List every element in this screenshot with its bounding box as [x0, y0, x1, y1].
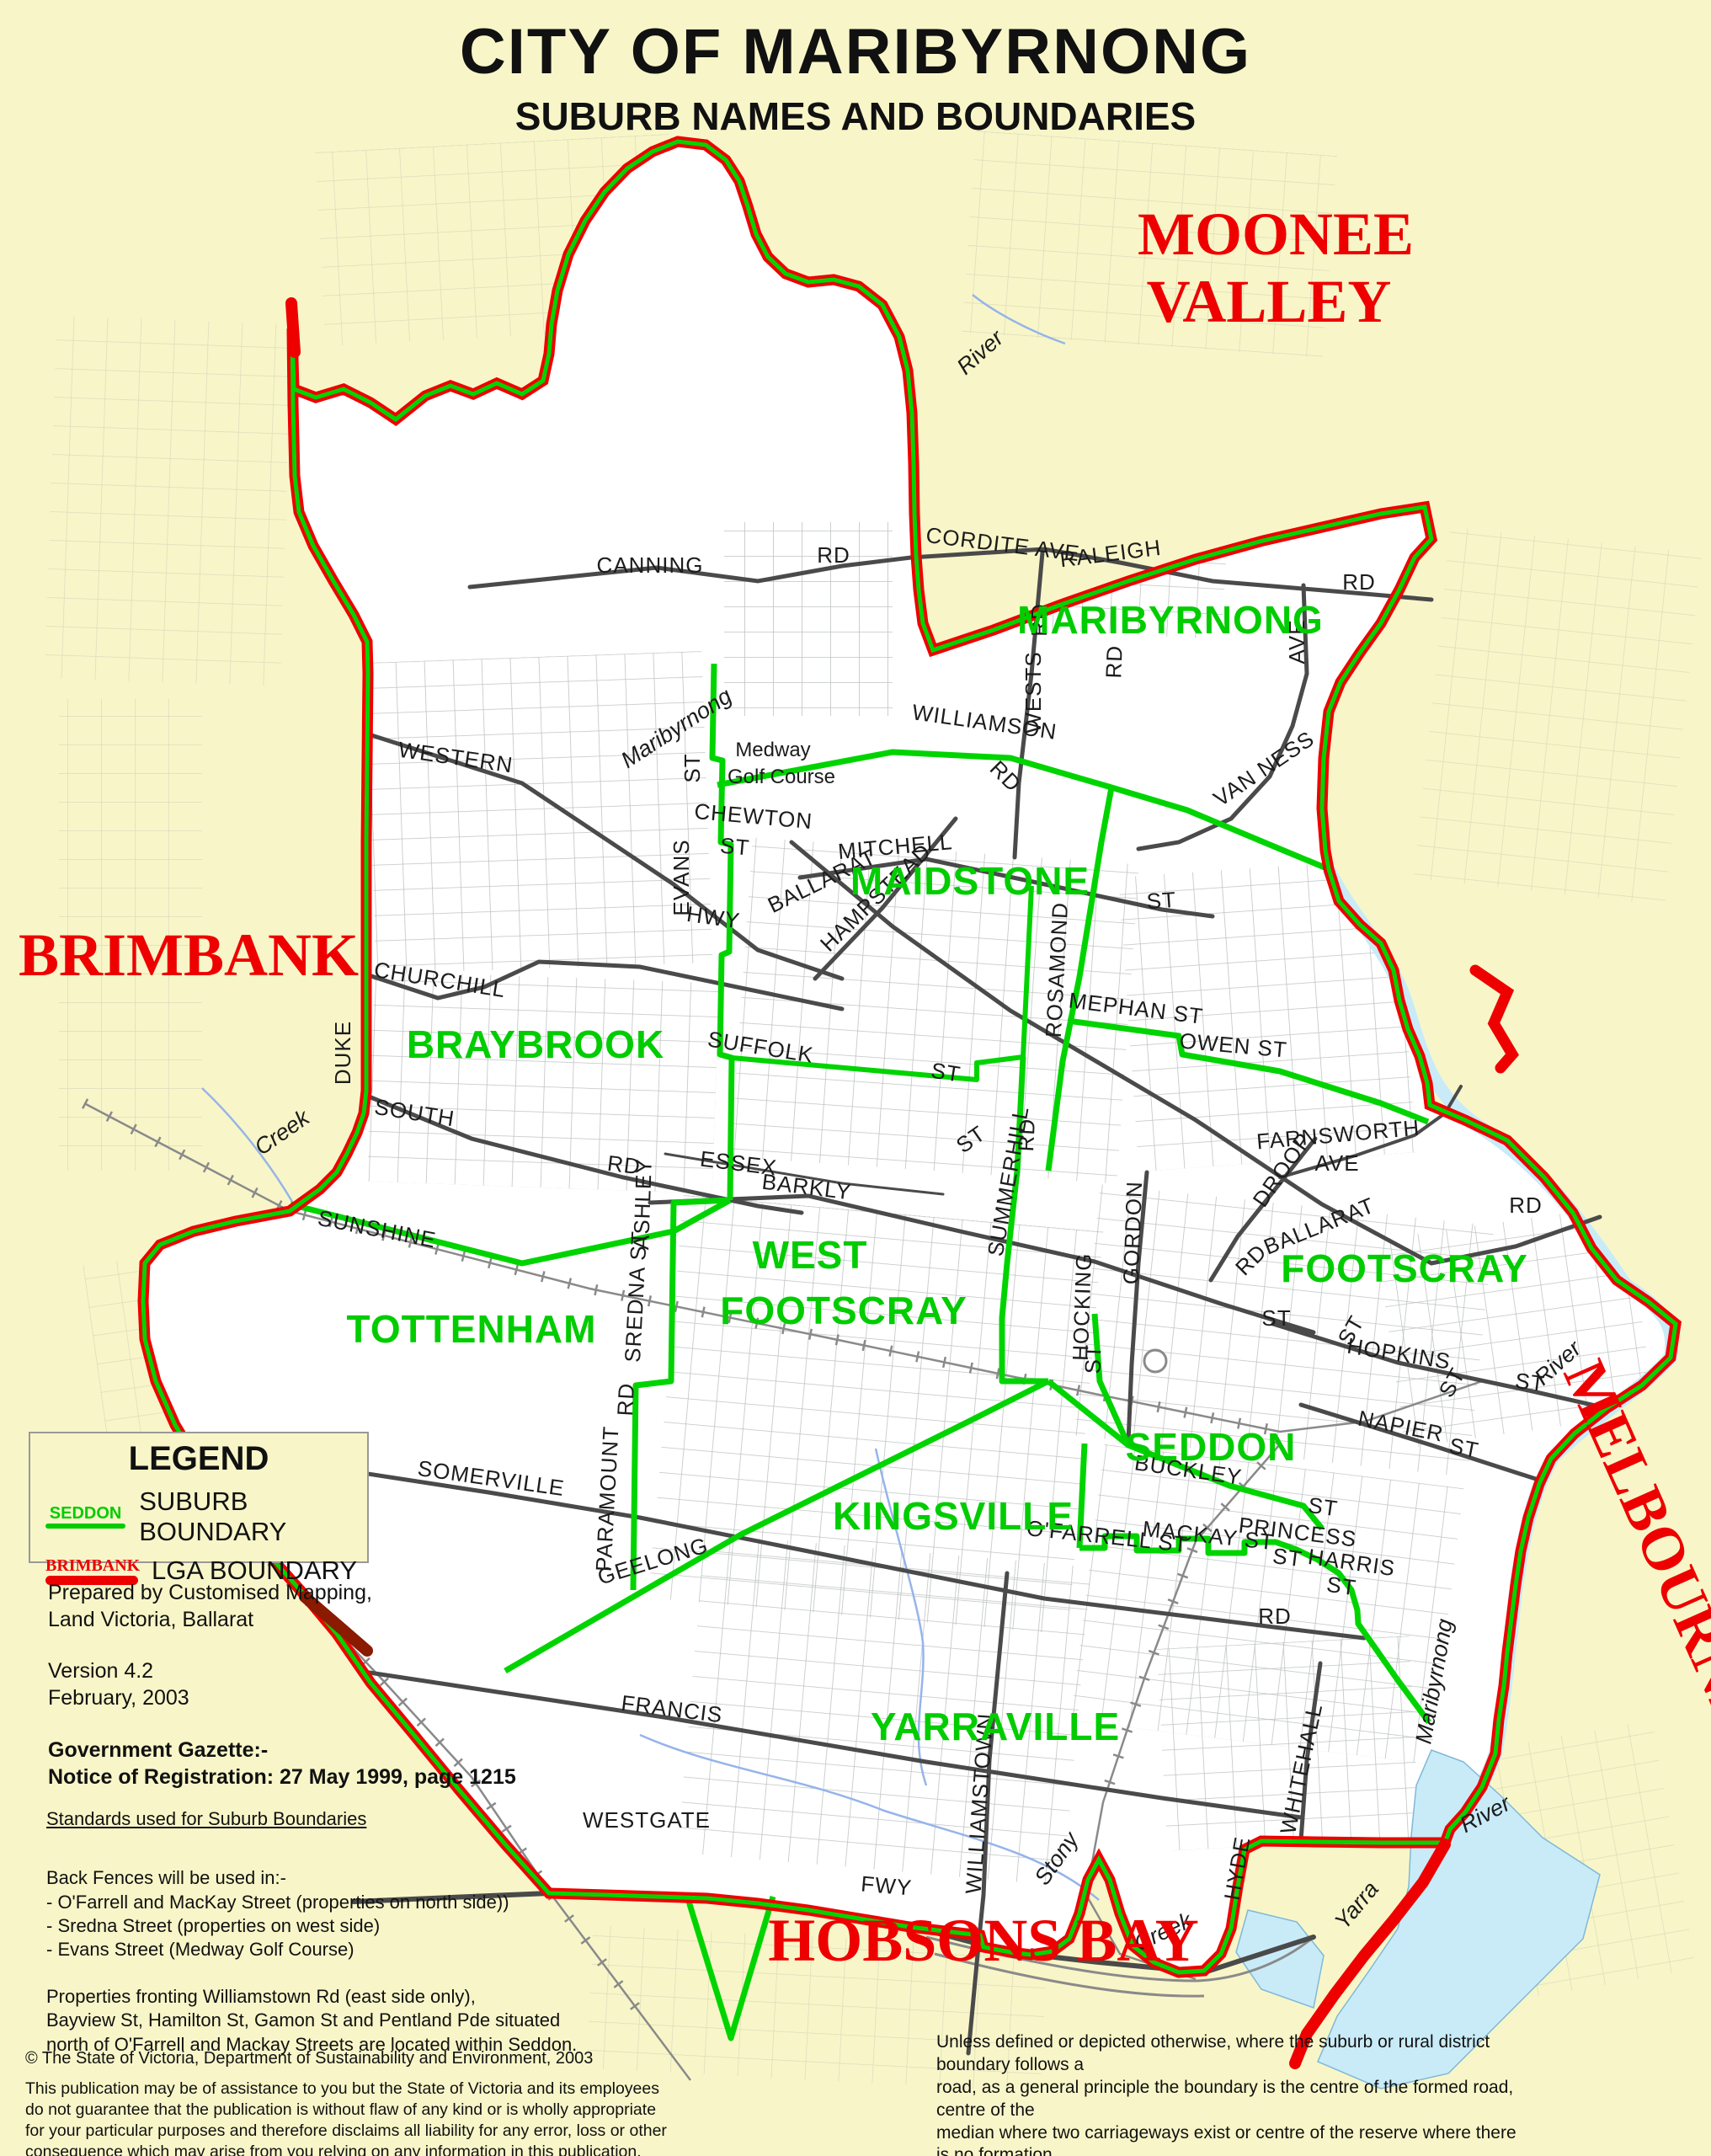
- road-label-rd: RD: [1342, 569, 1376, 595]
- suburb-boundary-label: SUBURB BOUNDARY: [139, 1486, 367, 1547]
- road-label-st: ST: [1325, 1572, 1358, 1601]
- road-label-rd: RD: [817, 542, 850, 568]
- standards-body: Back Fences will be used in:- - O'Farrel…: [46, 1867, 577, 2054]
- road-label-rd: RD: [1101, 644, 1127, 679]
- version-note: Version 4.2 February, 2003: [48, 1657, 189, 1711]
- road-label-rd: RD: [612, 1382, 639, 1417]
- title-block: CITY OF MARIBYRNONG SUBURB NAMES AND BOU…: [0, 15, 1711, 139]
- neighbor-label-brimbank: BRIMBANK: [19, 921, 359, 989]
- road-label-st: ST: [1307, 1492, 1340, 1522]
- legend-box: LEGEND SEDDON SUBURB BOUNDARY BRIMBANK L…: [29, 1432, 369, 1563]
- lga-sample-tag: BRIMBANK: [45, 1557, 138, 1574]
- page-title: CITY OF MARIBYRNONG: [0, 15, 1711, 88]
- road-label-rd: RD: [1509, 1193, 1543, 1218]
- road-label-golf-course: Golf Course: [728, 766, 835, 788]
- map-document-page: CANNINGRDCORDITE AVERALEIGHRDWILLIAMSONR…: [0, 0, 1711, 2156]
- road-label-westgate: WESTGATE: [583, 1807, 711, 1833]
- road-label-medway: Medway: [735, 739, 810, 761]
- road-label-gordon: GORDON: [1118, 1181, 1147, 1285]
- copyright-note: © The State of Victoria, Department of S…: [25, 2048, 593, 2070]
- suburb-label-seddon: SEDDON: [1126, 1425, 1297, 1469]
- suburb-label-yarraville: YARRAVILLE: [871, 1705, 1120, 1748]
- road-label-duke: DUKE: [330, 1021, 355, 1085]
- neighbor-label-valley: VALLEY: [1147, 268, 1392, 335]
- page-subtitle: SUBURB NAMES AND BOUNDARIES: [0, 93, 1711, 139]
- gazette-note: Government Gazette:- Notice of Registrat…: [48, 1737, 516, 1790]
- suburb-sample-line: [45, 1524, 125, 1529]
- road-label-st: ST: [680, 753, 705, 782]
- road-label-rd: RD: [1258, 1604, 1292, 1629]
- road-label-wests: WESTS: [1021, 651, 1046, 733]
- boundary-definition-note: Unless defined or depicted otherwise, wh…: [936, 2031, 1526, 2156]
- suburb-label-footscray: FOOTSCRAY: [720, 1289, 967, 1332]
- road-label-st: ST: [930, 1058, 962, 1087]
- road-label-fwy: FWY: [860, 1870, 913, 1900]
- road-label-st: ST: [1146, 887, 1177, 914]
- standards-title: Standards used for Suburb Boundaries: [46, 1807, 577, 1831]
- prepared-by-note: Prepared by Customised Mapping, Land Vic…: [48, 1579, 372, 1633]
- standards-note: Standards used for Suburb Boundaries Bac…: [46, 1784, 577, 2057]
- neighbor-label-hobsons-bay: HOBSONS BAY: [768, 1907, 1199, 1974]
- suburb-label-kingsville: KINGSVILLE: [833, 1494, 1074, 1538]
- suburb-label-braybrook: BRAYBROOK: [407, 1022, 664, 1066]
- suburb-label-maidstone: MAIDSTONE: [850, 859, 1090, 903]
- road-label-st: ST: [719, 833, 751, 861]
- road-label-st: ST: [1079, 1344, 1106, 1374]
- legend-suburb-row: SEDDON SUBURB BOUNDARY: [45, 1486, 367, 1547]
- disclaimer-note: This publication may be of assistance to…: [25, 2079, 667, 2156]
- road-label-canning: CANNING: [597, 552, 704, 578]
- road-label-st: ST: [1261, 1305, 1291, 1331]
- road-label-ave: AVE: [1314, 1150, 1359, 1176]
- suburb-label-tottenham: TOTTENHAM: [347, 1307, 597, 1351]
- suburb-label-footscray: FOOTSCRAY: [1281, 1246, 1528, 1290]
- suburb-label-west: WEST: [753, 1233, 868, 1277]
- suburb-label-maribyrnong: MARIBYRNONG: [1017, 598, 1324, 642]
- road-label-st: ST: [1271, 1543, 1304, 1572]
- suburb-boundary-sample: SEDDON: [45, 1505, 125, 1529]
- suburb-sample-tag: SEDDON: [45, 1505, 125, 1522]
- legend-title: LEGEND: [30, 1440, 367, 1478]
- neighbor-label-moonee: MOONEE: [1138, 200, 1414, 268]
